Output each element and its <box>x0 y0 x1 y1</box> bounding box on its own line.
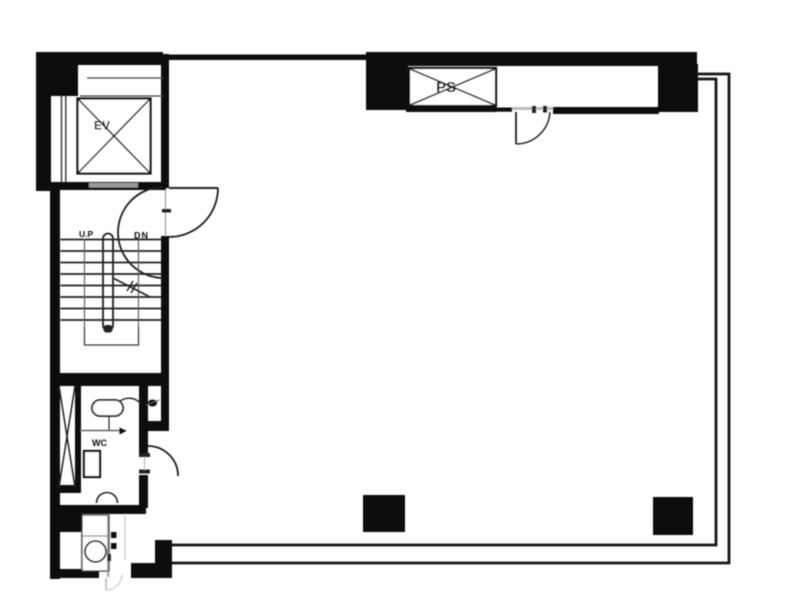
svg-text:U.P: U.P <box>79 229 94 239</box>
svg-text:EV: EV <box>94 119 110 133</box>
svg-text:WC: WC <box>92 438 107 448</box>
svg-text:DN: DN <box>134 231 149 241</box>
svg-text:PS: PS <box>436 79 456 96</box>
